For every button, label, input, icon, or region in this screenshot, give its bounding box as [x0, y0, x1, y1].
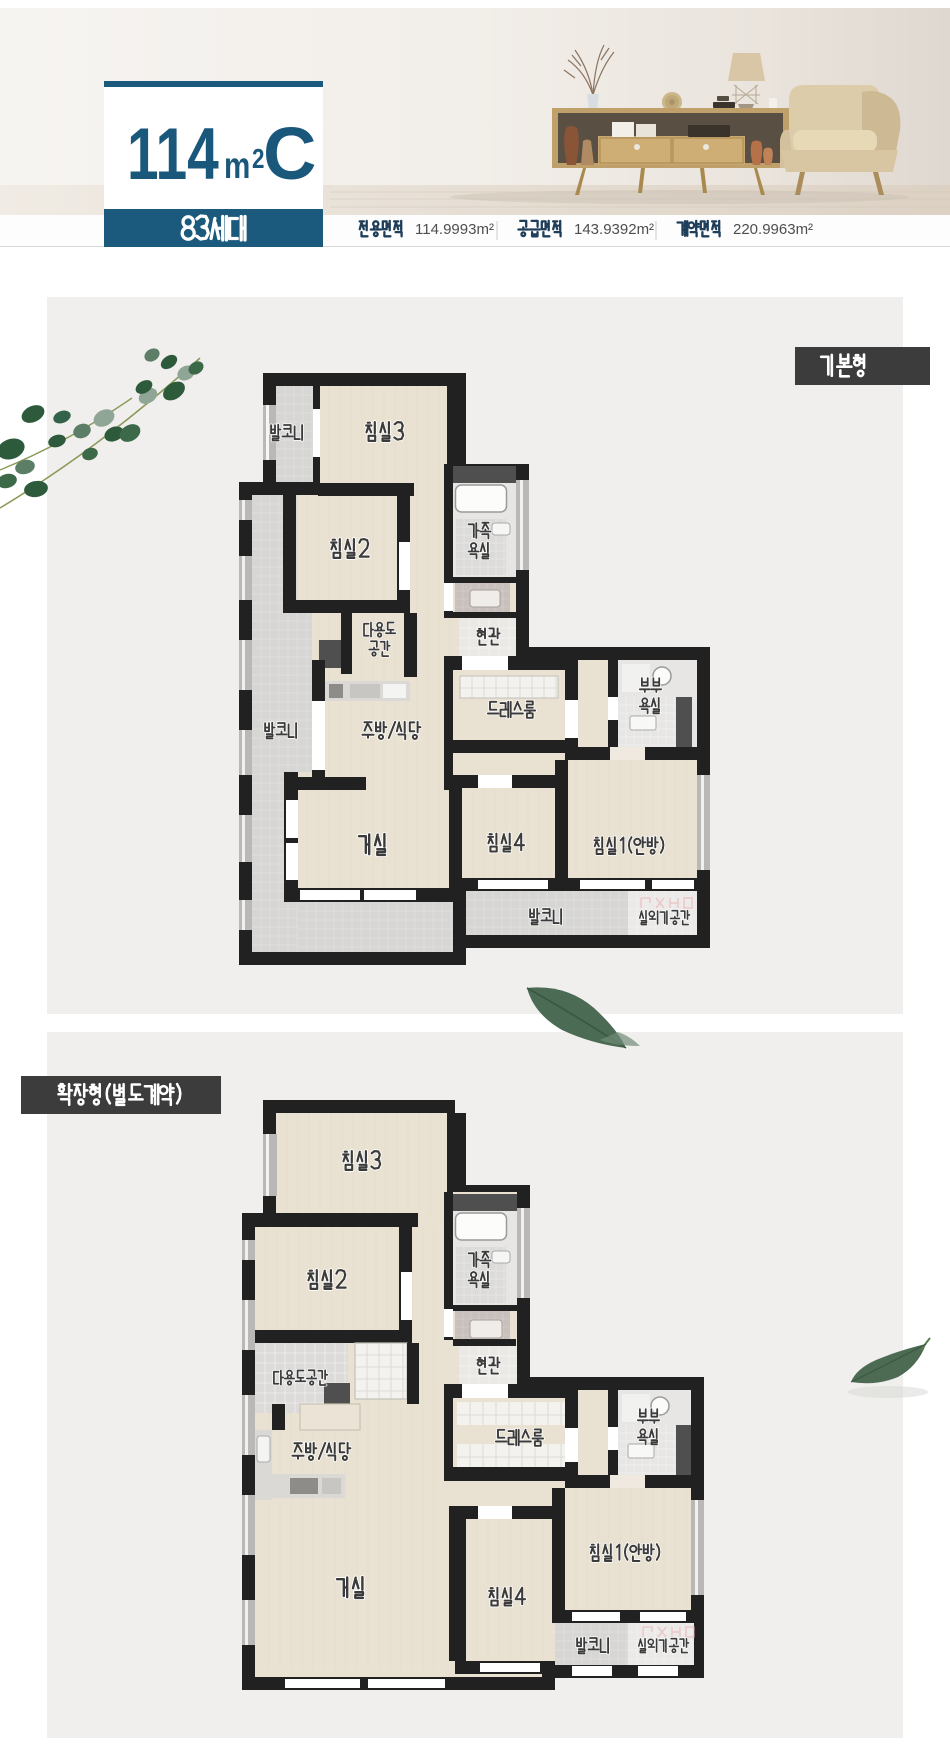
svg-text:220.9963m²: 220.9963m² [733, 221, 813, 238]
svg-text:143.9392m²: 143.9392m² [574, 221, 654, 238]
svg-text:C: C [263, 112, 316, 195]
svg-text:114.9993m²: 114.9993m² [415, 221, 494, 238]
svg-text:114: 114 [127, 113, 219, 194]
svg-text:m: m [224, 146, 250, 187]
